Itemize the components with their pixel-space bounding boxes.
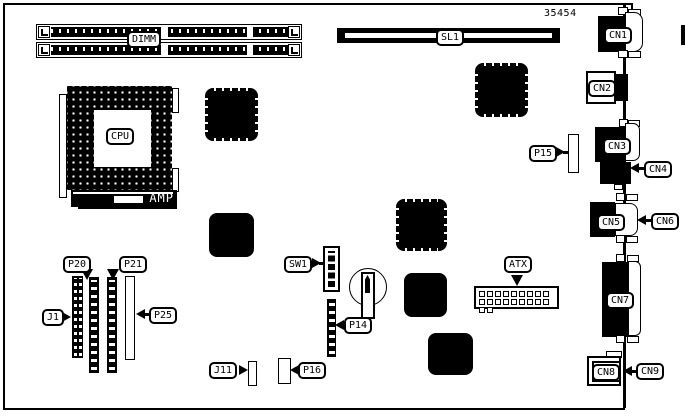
p20-header — [89, 277, 99, 373]
chip-qfp-3 — [475, 63, 528, 117]
cn8-label: CN8 — [592, 364, 620, 381]
amp-module: AMP — [71, 190, 177, 207]
chip-qfp-4 — [396, 199, 447, 251]
cn5-mount-tab — [626, 194, 638, 201]
j1-header — [72, 276, 83, 358]
p21-header — [107, 277, 117, 373]
j11-connector — [248, 361, 257, 386]
cn5-mount-tab — [616, 235, 625, 243]
p25-label: P25 — [149, 307, 177, 324]
dimm-slot-1-pins — [51, 27, 289, 37]
amp-label: AMP — [149, 192, 174, 205]
dimm-slot-2 — [36, 42, 302, 58]
dimm-slot-1 — [36, 24, 302, 40]
cn5-label: CN5 — [597, 214, 625, 231]
cn4-label: CN4 — [644, 161, 672, 178]
cn1-label: CN1 — [604, 27, 632, 44]
cn5-mount-tab — [616, 193, 625, 201]
sw1-dip-blocks — [328, 251, 335, 287]
sw1-dip-switch — [323, 246, 340, 292]
dimm-slot-1-gap — [247, 27, 253, 37]
p16-label: P16 — [298, 362, 326, 379]
chip-6 — [428, 333, 473, 375]
p14-arrow — [335, 320, 344, 330]
j11-label: J11 — [209, 362, 237, 379]
dimm-slot-1-gap — [161, 27, 168, 37]
sw1-label: SW1 — [284, 256, 312, 273]
sl1-label: SL1 — [436, 29, 464, 46]
cpu-label: CPU — [106, 128, 134, 145]
j1-label: J1 — [42, 309, 64, 326]
dimm-latch-icon — [38, 26, 50, 38]
j11-arrow — [239, 365, 248, 375]
cpu-socket-side-bar — [59, 94, 67, 198]
atx-connector — [474, 286, 559, 309]
dimm-label: DIMM — [127, 31, 161, 48]
battery-pin-tip — [365, 275, 370, 293]
dimm-slot-2-gap — [247, 45, 253, 55]
cn7-label: CN7 — [606, 292, 634, 309]
atx-label: ATX — [504, 256, 532, 273]
p15-connector — [568, 134, 579, 173]
cn7-mount-tab — [616, 254, 625, 262]
cn6-label: CN6 — [651, 213, 679, 230]
cn2-port — [616, 74, 628, 101]
chip-2 — [209, 213, 254, 257]
p21-pointer — [107, 269, 119, 280]
cn2-label: CN2 — [588, 80, 616, 97]
chip-5 — [404, 273, 447, 317]
chip-qfp-1 — [205, 88, 258, 141]
atx-pin-grid — [476, 288, 557, 307]
amp-window — [114, 196, 143, 203]
p15-arrow-stub — [563, 151, 568, 154]
p20-label: P20 — [63, 256, 91, 273]
p14-label: P14 — [344, 317, 372, 334]
edge-artifact — [681, 25, 685, 45]
atx-pointer — [511, 275, 523, 286]
dimm-latch-icon — [288, 44, 300, 56]
dimm-latch-icon — [38, 44, 50, 56]
cn5-mount-tab — [626, 236, 638, 243]
cn4-body — [600, 162, 631, 184]
cn4-mount-tab — [614, 184, 623, 190]
cn3-label: CN3 — [603, 138, 631, 155]
p15-label: P15 — [529, 145, 557, 162]
amp-shadow — [78, 207, 177, 209]
dimm-slot-2-gap — [161, 45, 168, 55]
cn1-mount-tab — [628, 51, 641, 58]
cpu-latch-top — [172, 88, 179, 113]
dimm-slot-2-pins — [51, 45, 289, 55]
p25-slot — [125, 276, 135, 360]
p21-label: P21 — [119, 256, 147, 273]
cn7-mount-tab — [627, 336, 639, 343]
cpu-latch-bottom — [172, 168, 179, 192]
cn7-mount-tab — [616, 335, 625, 343]
cn9-label: CN9 — [636, 363, 664, 380]
motherboard-diagram: 35454 DIMM SL1 CPU AMP P20 — [0, 0, 685, 416]
part-number: 35454 — [544, 9, 577, 19]
dimm-latch-icon — [288, 26, 300, 38]
battery-pin — [361, 272, 375, 319]
sw1-arrow-stub — [319, 262, 324, 265]
cn1-mount-tab — [618, 50, 628, 58]
